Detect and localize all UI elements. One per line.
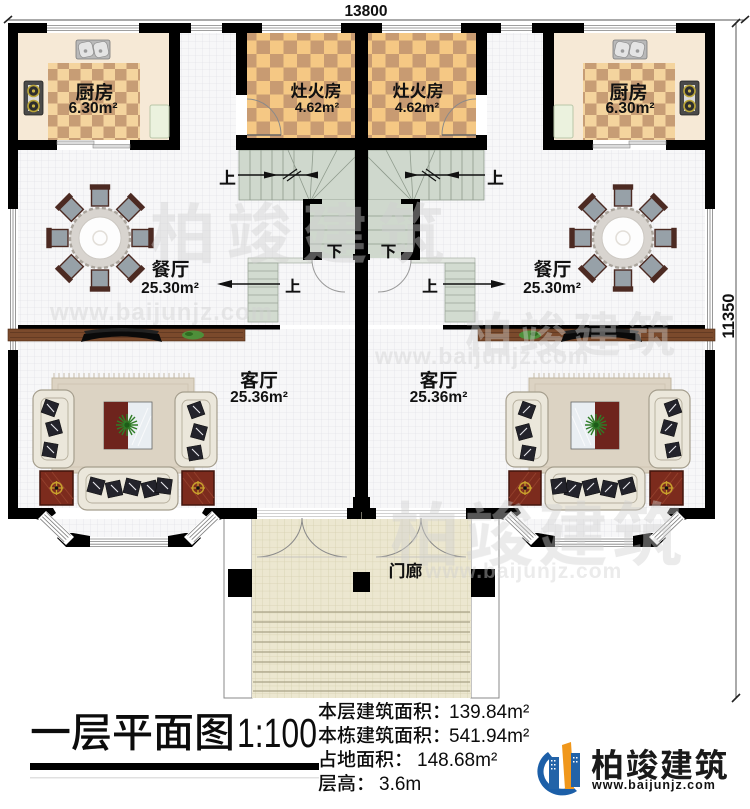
svg-text:25.36m²: 25.36m² (230, 389, 288, 406)
svg-text:11350: 11350 (720, 294, 738, 339)
svg-text:139.84m²: 139.84m² (449, 702, 529, 723)
svg-text:4.62m²: 4.62m² (395, 99, 440, 115)
svg-text:25.36m²: 25.36m² (410, 389, 468, 406)
svg-text:25.30m²: 25.30m² (523, 280, 581, 297)
svg-text:3.6m: 3.6m (379, 774, 421, 795)
svg-text:13800: 13800 (344, 3, 387, 20)
svg-text:www.baijunjz.com: www.baijunjz.com (591, 778, 716, 792)
svg-text:6.30m²: 6.30m² (605, 100, 654, 117)
svg-text:1:100: 1:100 (237, 710, 317, 756)
svg-text:541.94m²: 541.94m² (449, 726, 529, 747)
svg-text:www.baijunjz.com: www.baijunjz.com (374, 343, 590, 369)
svg-text:www.baijunjz.com: www.baijunjz.com (49, 299, 273, 326)
svg-text:www.baijunjz.com: www.baijunjz.com (424, 560, 622, 583)
svg-text:25.30m²: 25.30m² (141, 280, 199, 297)
svg-text:6.30m²: 6.30m² (68, 100, 117, 117)
svg-text:148.68m²: 148.68m² (417, 750, 497, 771)
svg-text:4.62m²: 4.62m² (295, 99, 340, 115)
